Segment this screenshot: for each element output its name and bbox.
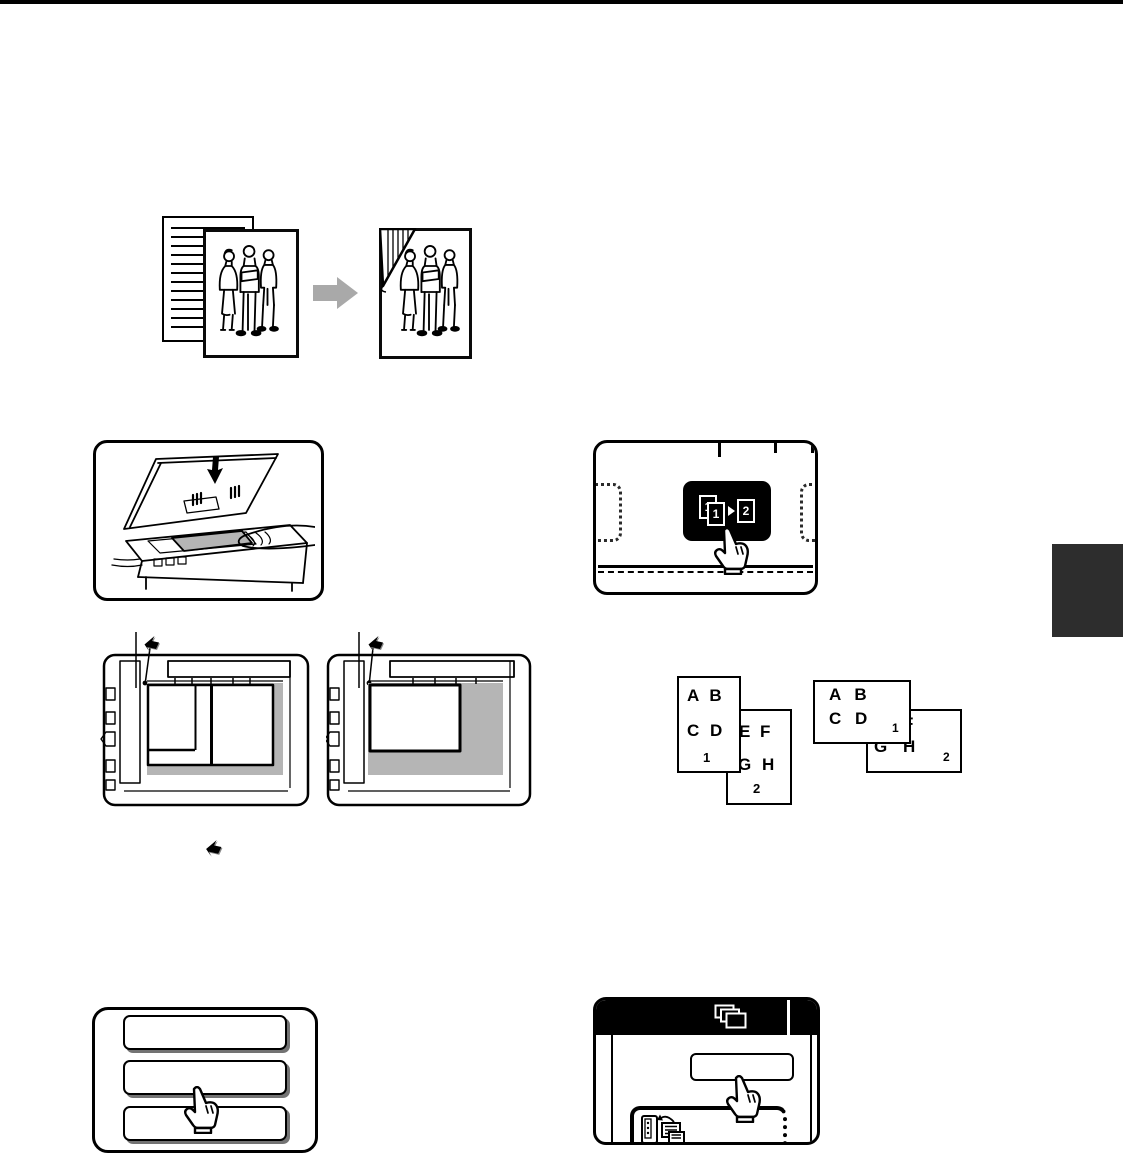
panel-key-1[interactable] — [123, 1015, 287, 1050]
page-number: 1 — [892, 722, 899, 734]
screen-inner-edge-left — [611, 1035, 613, 1142]
document-glass-single-figure — [326, 628, 534, 815]
duplex-key-figure: 1 1 2 — [593, 440, 818, 595]
header-divider — [787, 1000, 790, 1035]
page-two: 2 — [737, 499, 755, 523]
page-letters: C D — [829, 710, 867, 727]
page-number: 2 — [753, 782, 760, 795]
place-original-figure — [93, 440, 324, 601]
press-hand-cursor — [711, 527, 753, 575]
panel-rule — [598, 565, 813, 568]
two-sided-copy-page — [379, 228, 472, 359]
landscape-original-front: A B C D 1 — [813, 680, 911, 744]
page-top-rule — [0, 0, 1123, 4]
arrow-icon — [728, 506, 735, 516]
original-pages-icon: 1 1 — [699, 495, 727, 527]
key-panel-figure — [92, 1007, 318, 1153]
adjacent-key-right — [800, 483, 818, 542]
panel-edge-mark — [718, 443, 721, 457]
original-position-mark-icon — [369, 636, 385, 652]
portrait-original-front: A B C D 1 — [677, 676, 741, 773]
original-position-mark-icon — [145, 636, 161, 652]
panel-rule-dashed — [598, 571, 813, 573]
manual-page: 1 1 2 — [0, 0, 1123, 1158]
page-one-front: 1 — [707, 502, 725, 526]
copier-line-art — [96, 443, 315, 592]
press-hand-cursor — [723, 1075, 765, 1123]
panel-edge-mark — [811, 443, 814, 453]
original-position-mark-icon — [203, 838, 225, 858]
right-arrow-icon — [313, 276, 359, 310]
photo-original-page — [203, 229, 299, 358]
people-illustration — [212, 240, 284, 344]
page-number: 2 — [943, 751, 950, 763]
screen-header — [596, 1000, 817, 1035]
adjacent-key-left — [593, 483, 622, 542]
page-letters: A B — [687, 687, 722, 704]
document-glass-book-figure — [100, 628, 312, 815]
page-letters: A B — [829, 686, 867, 703]
page-letters: G H — [738, 756, 774, 773]
press-hand-cursor — [181, 1086, 223, 1134]
panel-edge-mark — [774, 443, 777, 453]
page-number: 1 — [703, 751, 710, 764]
chapter-tab — [1052, 544, 1123, 637]
screen-inner-edge-right — [810, 1035, 812, 1142]
copies-pages-icon — [714, 1004, 748, 1031]
original-to-copy-icon — [640, 1113, 698, 1145]
page-letters: C D — [687, 722, 722, 739]
page-letters: E F — [739, 723, 770, 740]
folded-corner — [379, 228, 421, 294]
touch-screen-figure — [593, 997, 820, 1145]
